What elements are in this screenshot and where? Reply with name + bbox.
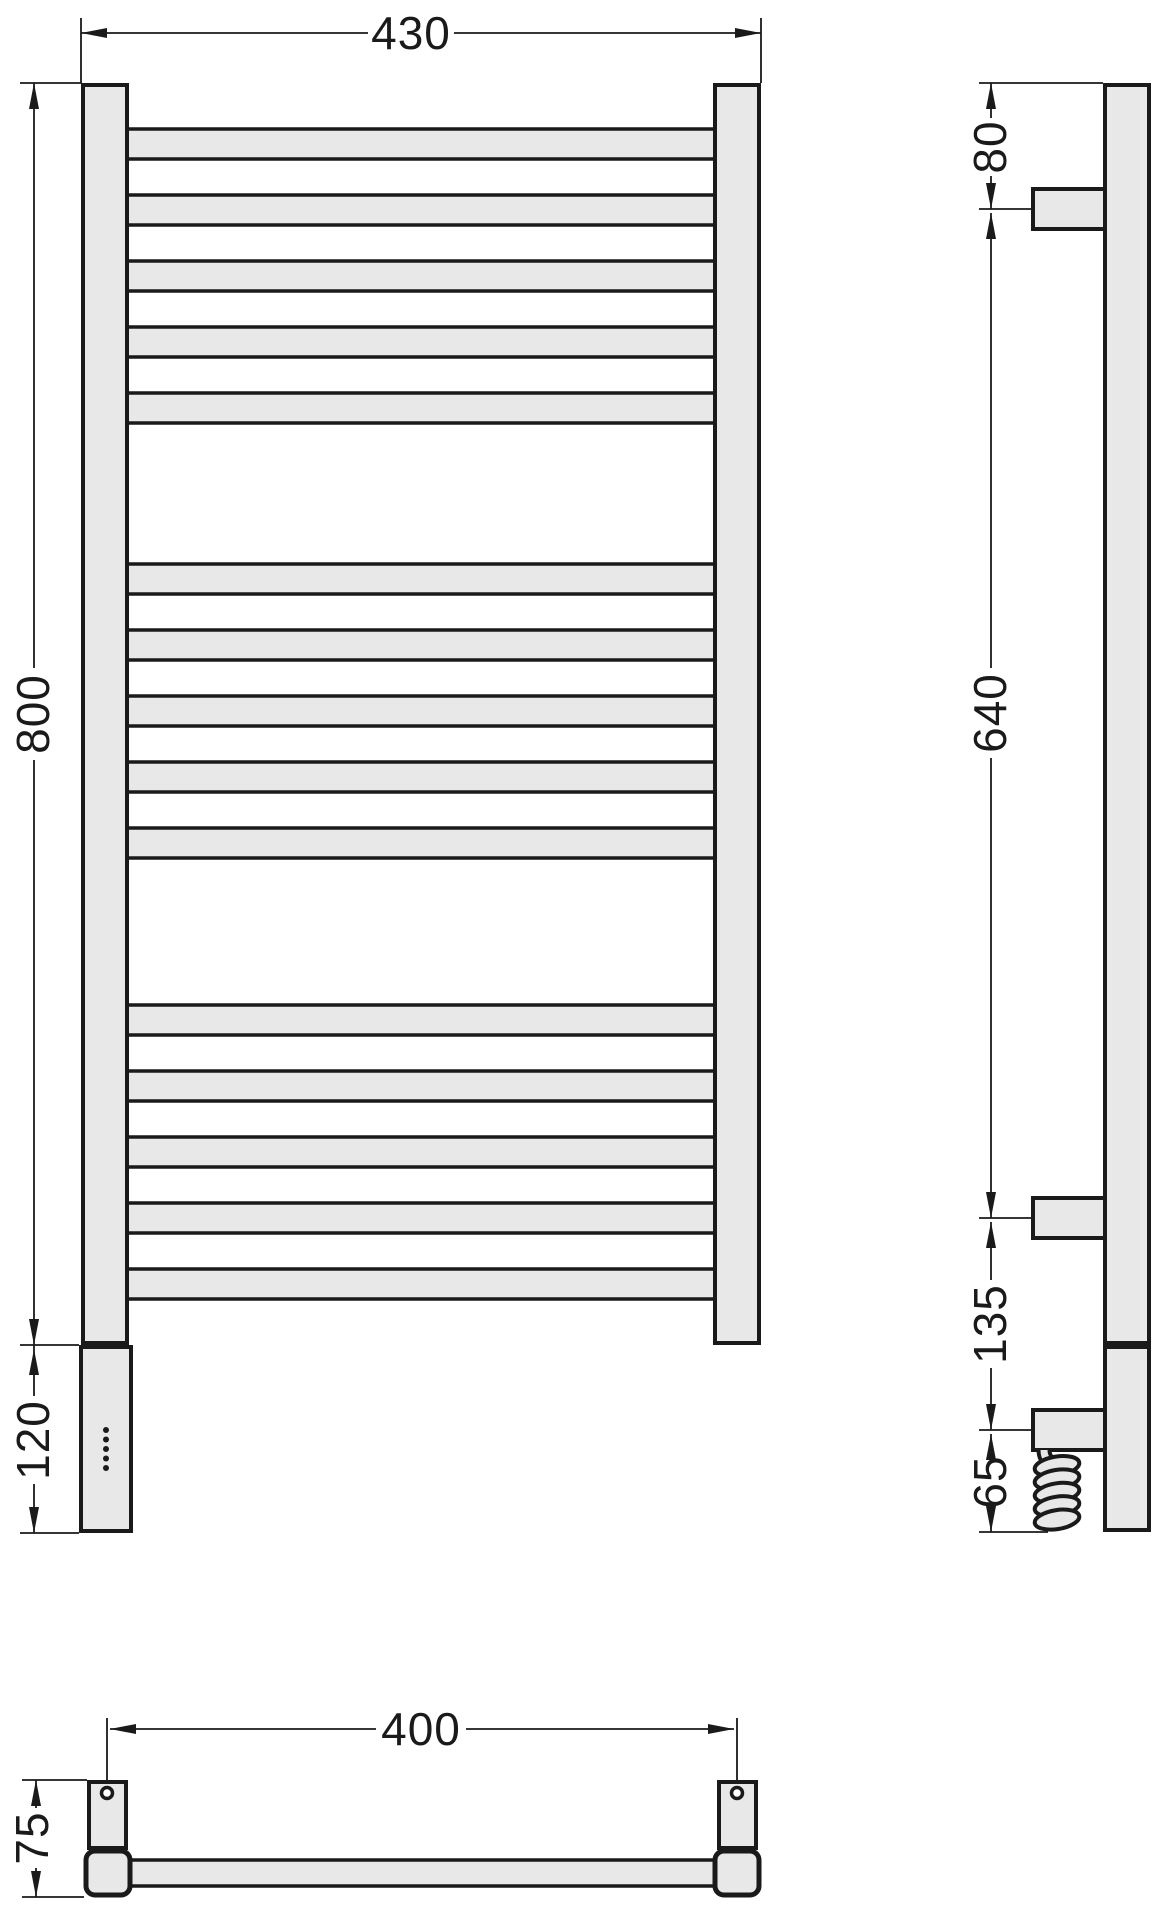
arrow-left-icon [110, 1724, 136, 1734]
indicator-dot [103, 1446, 109, 1452]
towel-bar [127, 1269, 715, 1299]
bottom-bar [130, 1860, 715, 1886]
arrow-down-icon [986, 183, 996, 209]
bottom-right-foot [715, 1782, 759, 1895]
arrow-up-icon [29, 83, 39, 109]
mount-centers-label: 400 [381, 1703, 461, 1755]
bottom-left-foot [86, 1782, 130, 1895]
arrow-down-icon [986, 1192, 996, 1218]
side-view [1033, 85, 1149, 1533]
arrow-up-icon [31, 1780, 41, 1806]
towel-bar [127, 129, 715, 159]
side-rail-profile [1105, 85, 1149, 1343]
indicator-dot [103, 1427, 109, 1433]
bottom-view [86, 1782, 759, 1895]
towel-bar [127, 828, 715, 858]
arrow-down-icon [29, 1319, 39, 1345]
housing-height-label: 120 [7, 1400, 59, 1480]
side-lower-offset-label: 135 [964, 1284, 1016, 1364]
drawing-canvas: 430 800 120 80 640 135 65 400 75 [0, 0, 1173, 1920]
right-foot-base [715, 1851, 759, 1895]
side-housing-profile [1105, 1347, 1149, 1530]
side-bracket-top [1033, 189, 1105, 229]
towel-bar [127, 327, 715, 357]
side-bracket-span-label: 640 [964, 673, 1016, 753]
arrow-down-icon [986, 1506, 996, 1532]
towel-bar [127, 1071, 715, 1101]
depth-label: 75 [6, 1811, 58, 1864]
drawing-sheet: 430 800 120 80 640 135 65 400 75 [0, 0, 1173, 1920]
arrow-right-icon [735, 28, 761, 38]
towel-bar [127, 630, 715, 660]
arrow-right-icon [708, 1724, 734, 1734]
indicator-dot [103, 1437, 109, 1443]
towel-bar [127, 393, 715, 423]
right-screw-hole [732, 1788, 743, 1799]
towel-bar [127, 195, 715, 225]
side-cable-drop-label: 65 [964, 1455, 1016, 1508]
cable-loops [1033, 1453, 1080, 1532]
indicator-dot [103, 1456, 109, 1462]
left-screw-hole [102, 1788, 113, 1799]
arrow-left-icon [81, 28, 107, 38]
dimension-lines [20, 18, 1103, 1897]
arrow-up-icon [29, 1349, 39, 1375]
towel-bar [127, 1203, 715, 1233]
side-bracket-bottom [1033, 1198, 1105, 1238]
arrow-up-icon [986, 83, 996, 109]
arrow-down-icon [29, 1507, 39, 1533]
towel-bar [127, 762, 715, 792]
arrow-up-icon [986, 1222, 996, 1248]
side-electric-box [1033, 1410, 1105, 1450]
towel-bar [127, 564, 715, 594]
towel-bar [127, 696, 715, 726]
arrow-down-icon [986, 1404, 996, 1430]
towel-bar [127, 1005, 715, 1035]
towel-bar [127, 261, 715, 291]
front-height-label: 800 [7, 674, 59, 754]
power-cable-coil [1033, 1450, 1080, 1533]
arrow-up-icon [986, 213, 996, 239]
left-foot-base [86, 1851, 130, 1895]
front-view-bars [127, 129, 715, 1299]
front-view [81, 85, 759, 1531]
side-top-offset-label: 80 [964, 120, 1016, 173]
towel-bar [127, 1137, 715, 1167]
front-right-rail [715, 85, 759, 1343]
front-left-rail [83, 85, 127, 1343]
arrow-down-icon [31, 1871, 41, 1897]
indicator-dot [103, 1465, 109, 1471]
front-width-label: 430 [371, 7, 451, 59]
